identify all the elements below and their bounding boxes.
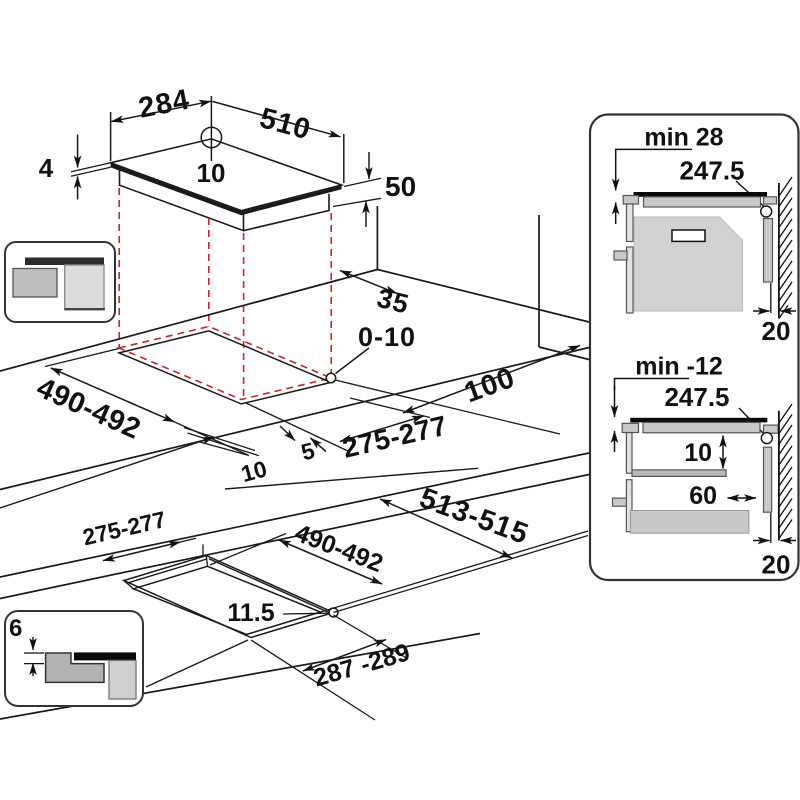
svg-text:0-10: 0-10 [358, 322, 416, 352]
svg-text:20: 20 [762, 550, 791, 580]
svg-text:min 28: min 28 [644, 124, 723, 152]
svg-text:247.5: 247.5 [679, 156, 744, 186]
svg-text:10: 10 [684, 439, 712, 467]
svg-text:247.5: 247.5 [664, 382, 729, 412]
svg-text:6: 6 [9, 615, 22, 642]
svg-text:min -12: min -12 [635, 353, 723, 381]
svg-text:11.5: 11.5 [227, 599, 274, 627]
svg-text:60: 60 [689, 482, 717, 510]
svg-text:20: 20 [762, 316, 791, 346]
svg-text:10: 10 [197, 158, 226, 188]
svg-text:50: 50 [385, 171, 416, 202]
svg-text:4: 4 [39, 153, 54, 183]
